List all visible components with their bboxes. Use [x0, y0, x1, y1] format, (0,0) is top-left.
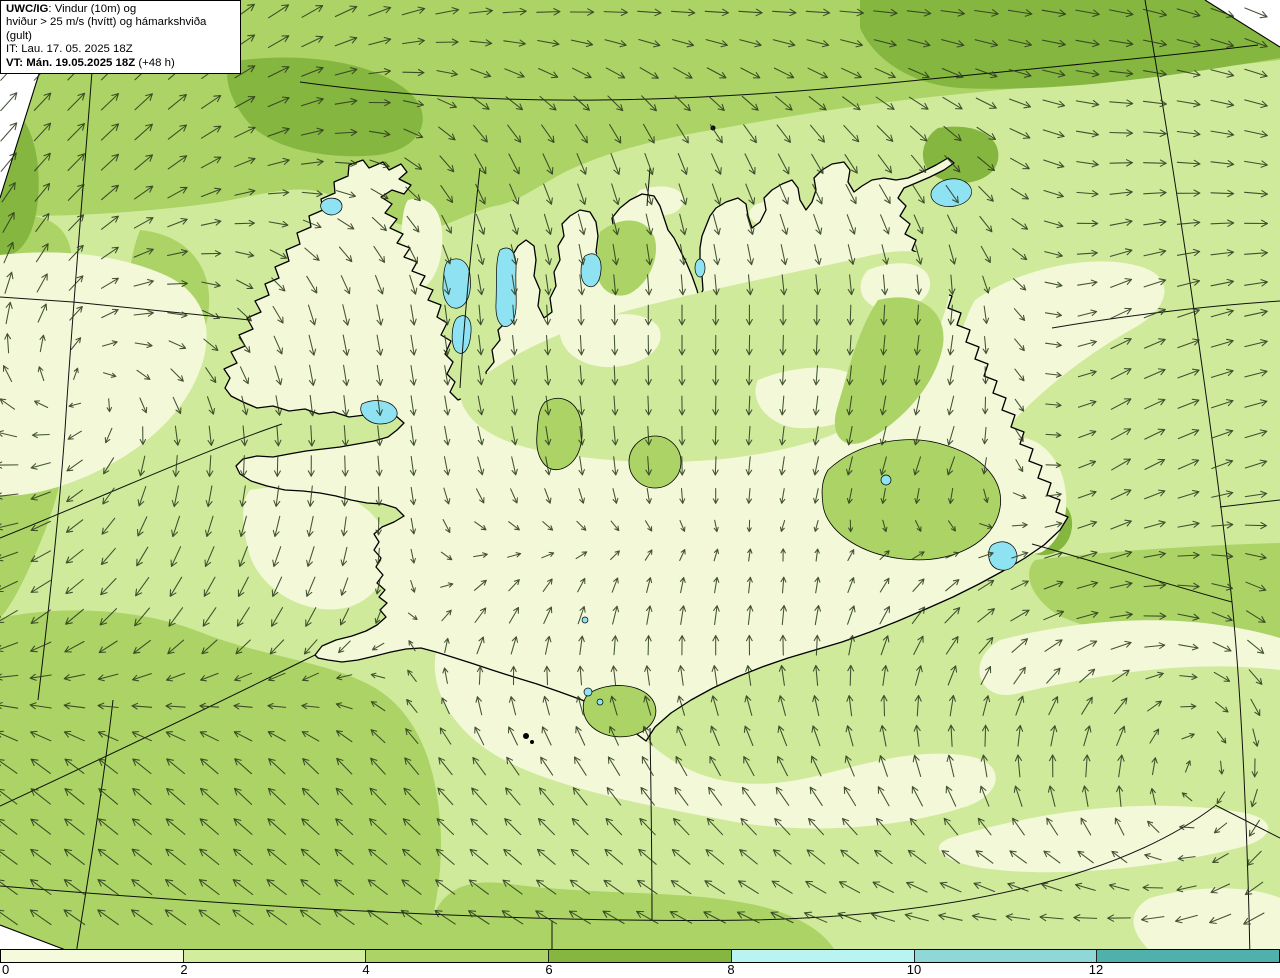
colorbar-tick-labels: 024681012 [0, 962, 1280, 978]
colorbar-band [914, 950, 1097, 962]
colorbar-band [1, 950, 183, 962]
colorbar-tick-label: 6 [545, 962, 552, 977]
weather-map-canvas [0, 0, 1280, 978]
title-line-1: UWC/IG: Vindur (10m) og [6, 3, 234, 16]
init-time-line: IT: Lau. 17. 05. 2025 18Z [6, 43, 234, 56]
colorbar-tick-label: 0 [2, 962, 9, 977]
colorbar-tick-label: 10 [907, 962, 921, 977]
colorbar: 024681012 [0, 949, 1280, 978]
colorbar-tick-label: 4 [362, 962, 369, 977]
colorbar-bands [0, 949, 1280, 963]
title-box: UWC/IG: Vindur (10m) og hviður > 25 m/s … [0, 0, 241, 74]
colorbar-band [183, 950, 366, 962]
colorbar-tick-label: 8 [727, 962, 734, 977]
colorbar-band [365, 950, 548, 962]
colorbar-tick-label: 2 [180, 962, 187, 977]
colorbar-band [1096, 950, 1279, 962]
colorbar-band [731, 950, 914, 962]
product-name: UWC/IG [6, 3, 48, 15]
title-line-2: hviður > 25 m/s (hvítt) og hámarkshviða … [6, 16, 234, 43]
valid-time-line: VT: Mán. 19.05.2025 18Z (+48 h) [6, 57, 234, 70]
colorbar-tick-label: 12 [1089, 962, 1103, 977]
colorbar-band [548, 950, 731, 962]
